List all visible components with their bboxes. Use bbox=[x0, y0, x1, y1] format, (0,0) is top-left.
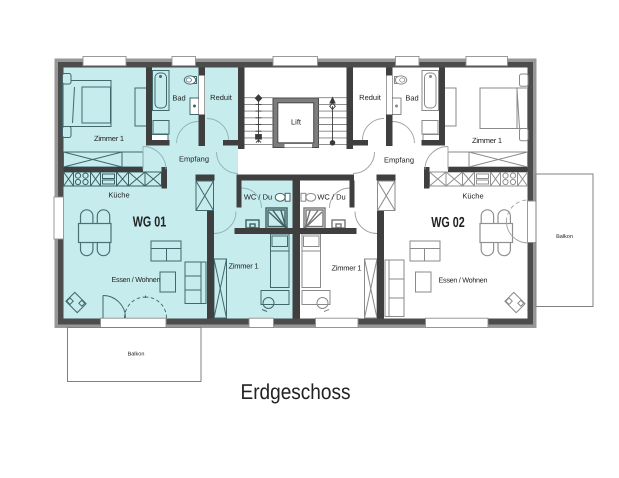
svg-text:WG 01: WG 01 bbox=[133, 215, 167, 231]
svg-text:Zimmer 1: Zimmer 1 bbox=[229, 262, 259, 271]
svg-text:Erdgeschoss: Erdgeschoss bbox=[241, 380, 351, 404]
svg-text:WC / Du: WC / Du bbox=[317, 193, 345, 202]
svg-text:Küche: Küche bbox=[462, 192, 483, 201]
svg-text:Zimmer 1: Zimmer 1 bbox=[332, 264, 362, 273]
svg-text:Bad: Bad bbox=[172, 94, 185, 103]
svg-text:Reduit: Reduit bbox=[359, 93, 382, 102]
svg-text:Bad: Bad bbox=[405, 94, 418, 103]
svg-text:WG 02: WG 02 bbox=[431, 215, 465, 231]
svg-text:Zimmer 1: Zimmer 1 bbox=[472, 136, 502, 145]
svg-text:Zimmer 1: Zimmer 1 bbox=[94, 134, 124, 143]
svg-text:Empfang: Empfang bbox=[179, 155, 209, 164]
svg-text:Empfang: Empfang bbox=[384, 156, 414, 165]
svg-text:Reduit: Reduit bbox=[210, 93, 233, 102]
svg-text:Essen / Wohnen: Essen / Wohnen bbox=[439, 276, 488, 285]
svg-text:WC / Du: WC / Du bbox=[244, 193, 272, 202]
svg-text:Küche: Küche bbox=[108, 191, 129, 200]
svg-text:Balkon: Balkon bbox=[128, 352, 145, 358]
svg-text:Balkon: Balkon bbox=[556, 234, 573, 240]
svg-text:Lift: Lift bbox=[291, 118, 302, 127]
svg-text:Essen / Wohnen: Essen / Wohnen bbox=[112, 275, 161, 284]
